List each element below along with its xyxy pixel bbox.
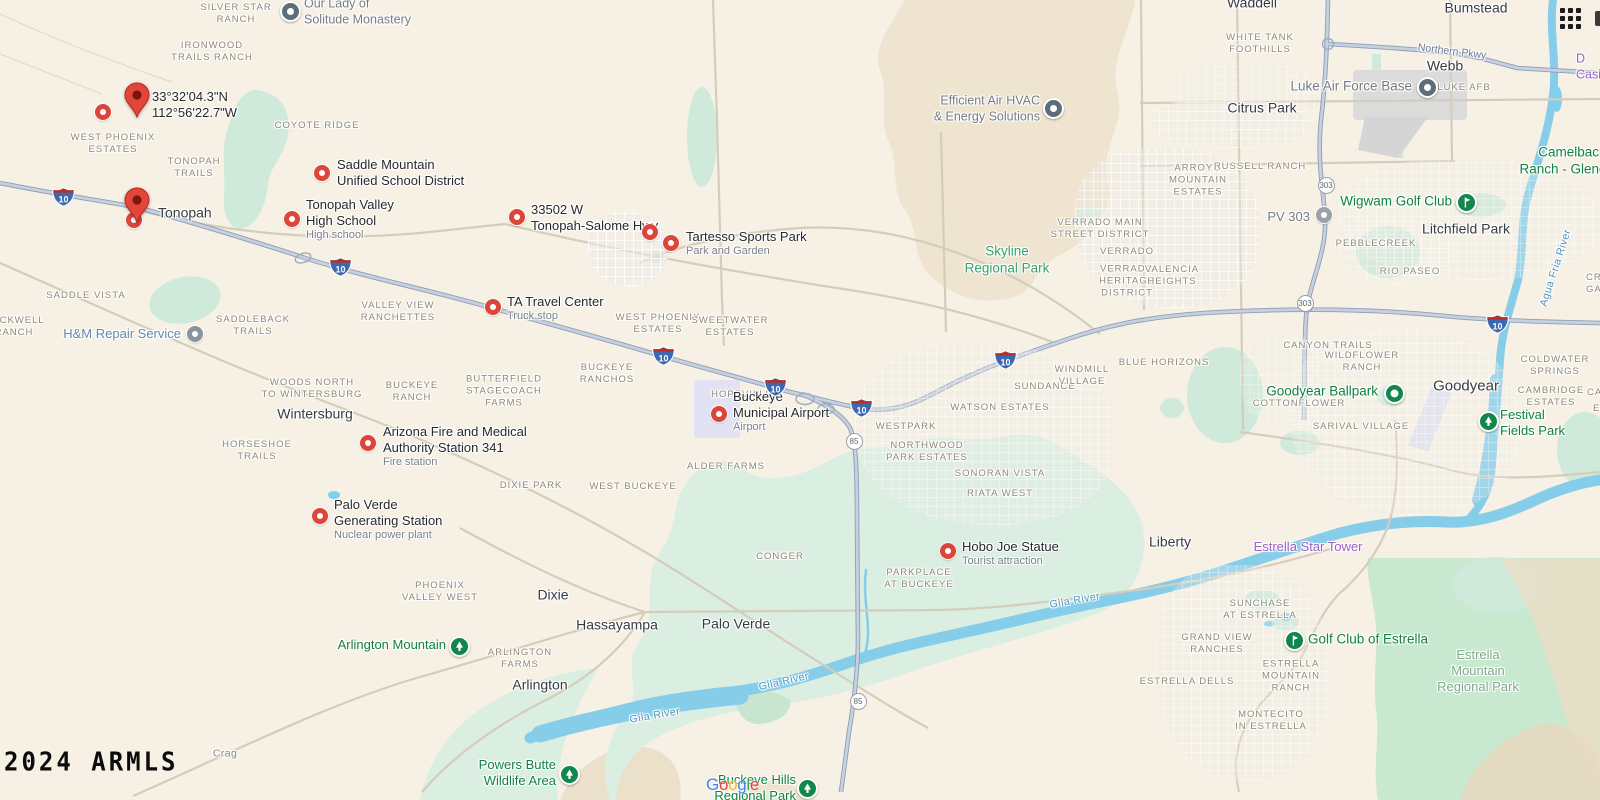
estrella-dells: ESTRELLA DELLS — [1140, 676, 1235, 688]
hwy-33502-w[interactable]: 33502 WTonopah-Salome Hwy — [531, 202, 658, 234]
i10-shield-6: 10 — [994, 350, 1017, 370]
buckeye-hills-icon[interactable] — [797, 778, 818, 799]
dropped-pin-coordinates[interactable] — [124, 82, 150, 123]
dixie-park: DIXIE PARK — [500, 480, 563, 492]
buckeye-ranchos: BUCKEYERANCHOS — [580, 362, 635, 386]
hm-repair-service[interactable]: H&M Repair Service — [63, 326, 181, 342]
west-phoenix-estates-1: WEST PHOENIXESTATES — [71, 132, 156, 156]
sr303-shield-1: 303 — [1318, 177, 1335, 194]
valencia-heights: VALENCIAHEIGHTS — [1145, 264, 1199, 288]
grid-icon[interactable] — [1560, 8, 1581, 29]
marker-pv-303[interactable] — [1316, 207, 1332, 223]
wildflower-ranch: WILDFLOWERRANCH — [1325, 350, 1399, 374]
crag: Crag — [213, 747, 237, 760]
i10-shield-3: 10 — [652, 346, 675, 366]
dropped-pin-coords[interactable]: 33°32'04.3"N112°56'22.7"W — [152, 89, 237, 121]
marker-tartesso-a[interactable] — [642, 224, 658, 240]
google-logo[interactable]: Google — [706, 775, 759, 795]
google-logo-letter: e — [750, 775, 759, 794]
grand-view-ranches: GRAND VIEWRANCHES — [1181, 632, 1252, 656]
marker-tonopah-valley-hs[interactable] — [284, 211, 300, 227]
golf-club-of-estrella[interactable]: Golf Club of Estrella — [1308, 632, 1428, 649]
arlington-mountain-icon[interactable] — [449, 636, 470, 657]
russell-ranch: RUSSELL RANCH — [1214, 161, 1306, 173]
ironwood-trails-ranch: IRONWOODTRAILS RANCH — [171, 40, 253, 64]
litchfield-park-city[interactable]: Litchfield Park — [1422, 220, 1510, 237]
google-logo-letter: G — [706, 775, 719, 794]
tonopah-valley-hs[interactable]: Tonopah ValleyHigh SchoolHigh school — [306, 197, 394, 243]
west-phoenix-estates-2: WEST PHOENIXESTATES — [616, 312, 701, 336]
verrado: VERRADO — [1100, 246, 1154, 258]
riata-west: RIATA WEST — [967, 488, 1033, 500]
sweetwater-estates: SWEETWATERESTATES — [691, 315, 768, 339]
westpark: WESTPARK — [876, 421, 937, 433]
northwood-park-estates: NORTHWOODPARK ESTATES — [886, 440, 968, 464]
dixie-city[interactable]: Dixie — [537, 586, 568, 603]
i10-shield-1: 10 — [52, 187, 75, 207]
marker-saddle-mountain-usd[interactable] — [314, 165, 330, 181]
svg-text:10: 10 — [58, 195, 68, 205]
efficient-air-hvac[interactable]: Efficient Air HVAC& Energy Solutions — [934, 94, 1040, 125]
valley-view-ranchettes: VALLEY VIEWRANCHETTES — [361, 300, 435, 324]
svg-text:10: 10 — [335, 265, 345, 275]
tonopah-city[interactable]: Tonopah — [158, 204, 212, 221]
casino-cut[interactable]: DCasin — [1576, 52, 1600, 83]
verrado-main-street-district: VERRADO MAINSTREET DISTRICT — [1051, 217, 1150, 241]
luke-air-force-base[interactable]: Luke Air Force Base — [1290, 79, 1412, 96]
saddle-mountain-usd[interactable]: Saddle MountainUnified School District — [337, 157, 464, 189]
marker-palo-verde-generating[interactable] — [312, 508, 328, 524]
coyote-ridge: COYOTE RIDGE — [275, 120, 360, 132]
goodyear-city[interactable]: Goodyear — [1433, 378, 1499, 397]
sarival-village: SARIVAL VILLAGE — [1313, 421, 1409, 433]
phoenix-valley-west: PHOENIXVALLEY WEST — [402, 580, 478, 604]
i10-shield-2: 10 — [329, 257, 352, 277]
goodyear-ballpark[interactable]: Goodyear Ballpark — [1266, 384, 1378, 401]
rockwell-ranch: ROCKWELLRANCH — [0, 315, 45, 339]
pebblecreek: PEBBLECREEK — [1336, 238, 1417, 250]
svg-text:10: 10 — [856, 406, 866, 416]
marker-hm-repair-service[interactable] — [187, 326, 203, 342]
skyline-regional-park[interactable]: SkylineRegional Park — [965, 243, 1050, 276]
pv-303[interactable]: PV 303 — [1267, 209, 1310, 225]
cut-label-cr-ga: CRGA — [1586, 272, 1600, 296]
conger: CONGER — [756, 551, 804, 563]
map-viewport[interactable]: SILVER STARRANCHIRONWOODTRAILS RANCHWEST… — [0, 0, 1600, 800]
our-lady-monastery[interactable]: Our Lady ofSolitude Monastery — [304, 0, 411, 28]
arlington-city[interactable]: Arlington — [512, 676, 567, 693]
white-tank-foothills: WHITE TANKFOOTHILLS — [1226, 32, 1294, 56]
cut-label-cas: CAS — [1587, 387, 1600, 399]
svg-text:10: 10 — [1000, 358, 1010, 368]
camelback-ranch-glendale[interactable]: CamelbackRanch - Glendale — [1519, 144, 1600, 177]
pin-tonopah[interactable] — [124, 187, 150, 228]
goodyear-ballpark-icon[interactable] — [1384, 383, 1405, 404]
estrella-star-tower[interactable]: Estrella Star Tower — [1254, 539, 1363, 555]
wigwam-golf-icon[interactable] — [1456, 192, 1477, 213]
woods-north-to-wintersburg: WOODS NORTHTO WINTERSBURG — [262, 377, 363, 401]
marker-ta-travel-center[interactable] — [485, 299, 501, 315]
powers-butte-wildlife[interactable]: Powers ButteWildlife Area — [479, 757, 556, 789]
hassayampa-city[interactable]: Hassayampa — [576, 616, 658, 633]
sunchase-at-estrella: SUNCHASEAT ESTRELLA — [1223, 598, 1296, 622]
google-logo-letter: o — [719, 775, 728, 794]
estrella-mountain-ranch: ESTRELLAMOUNTAINRANCH — [1262, 658, 1320, 693]
sr85-shield-2: 85 — [850, 693, 867, 710]
svg-text:10: 10 — [770, 385, 780, 395]
arlington-farms: ARLINGTONFARMS — [488, 647, 552, 671]
tonopah-trails: TONOPAHTRAILS — [167, 156, 220, 180]
citrus-park-city[interactable]: Citrus Park — [1227, 99, 1296, 116]
west-buckeye: WEST BUCKEYE — [589, 481, 676, 493]
palo-verde-generating[interactable]: Palo VerdeGenerating StationNuclear powe… — [334, 497, 442, 543]
hobo-joe-statue[interactable]: Hobo Joe StatueTourist attraction — [962, 539, 1059, 569]
sr85-shield-1: 85 — [846, 433, 863, 450]
watson-estates: WATSON ESTATES — [950, 402, 1049, 414]
alder-farms: ALDER FARMS — [687, 461, 765, 473]
marker-az-fire-station-341[interactable] — [360, 435, 376, 451]
cambridge-estates: CAMBRIDGEESTATES — [1518, 385, 1585, 409]
palo-verde-city[interactable]: Palo Verde — [702, 615, 771, 632]
liberty-city[interactable]: Liberty — [1149, 533, 1191, 550]
svg-text:10: 10 — [1492, 322, 1502, 332]
sr303-shield-2: 303 — [1297, 295, 1314, 312]
svg-text:10: 10 — [658, 354, 668, 364]
saddle-vista: SADDLE VISTA — [46, 290, 125, 302]
sonoran-vista: SONORAN VISTA — [955, 468, 1045, 480]
parkplace-at-buckeye: PARKPLACEAT BUCKEYE — [884, 567, 953, 591]
silver-star-ranch: SILVER STARRANCH — [200, 2, 271, 26]
marker-west-phoenix-estates[interactable] — [95, 104, 111, 120]
coldwater-springs: COLDWATERSPRINGS — [1521, 354, 1590, 378]
waddell-city[interactable]: Waddell — [1227, 0, 1277, 12]
powers-butte-icon[interactable] — [559, 764, 580, 785]
webb-city[interactable]: Webb — [1427, 57, 1463, 74]
luke-afb-small: LUKE AFB — [1437, 82, 1490, 94]
edge-partial-icon — [1595, 11, 1600, 26]
wintersburg-city[interactable]: Wintersburg — [277, 405, 352, 422]
blue-horizons: BLUE HORIZONS — [1119, 357, 1210, 369]
buckeye-ranch: BUCKEYERANCH — [386, 380, 438, 404]
estrella-mountain-regional-park: EstrellaMountainRegional Park — [1437, 647, 1519, 695]
az-fire-station-341[interactable]: Arizona Fire and MedicalAuthority Statio… — [383, 424, 527, 470]
luke-afb-icon[interactable] — [1417, 77, 1438, 98]
ta-travel-center[interactable]: TA Travel CenterTruck stop — [507, 294, 604, 324]
wigwam-golf-club[interactable]: Wigwam Golf Club — [1340, 194, 1452, 211]
google-logo-letter: o — [728, 775, 737, 794]
marker-hobo-joe-statue[interactable] — [940, 543, 956, 559]
efficient-air-icon[interactable] — [1043, 98, 1064, 119]
horseshoe-trails: HORSESHOETRAILS — [222, 439, 292, 463]
marker-buckeye-municipal-airport[interactable] — [711, 406, 727, 422]
rio-paseo: RIO PASEO — [1380, 266, 1441, 278]
bumstead-city[interactable]: Bumstead — [1444, 0, 1507, 17]
windmill-village: WINDMILLVILLAGE — [1055, 364, 1109, 388]
armls-watermark: 2024 ARMLS — [4, 747, 179, 777]
cut-label-e: E — [1593, 403, 1600, 415]
festival-fields-park[interactable]: FestivalFields Park — [1500, 407, 1565, 439]
i10-shield-4: 10 — [764, 377, 787, 397]
golf-club-estrella-icon[interactable] — [1284, 630, 1305, 651]
marker-33502-w[interactable] — [509, 209, 525, 225]
saddleback-trails: SADDLEBACKTRAILS — [216, 314, 290, 338]
i10-shield-5: 10 — [850, 398, 873, 418]
marker-tartesso-sports-park[interactable] — [663, 235, 679, 251]
tartesso-sports-park[interactable]: Tartesso Sports ParkPark and Garden — [686, 229, 807, 259]
butterfield-stagecoach-farms: BUTTERFIELDSTAGECOACHFARMS — [466, 373, 542, 408]
arlington-mountain[interactable]: Arlington Mountain — [338, 637, 446, 653]
our-lady-monastery-icon[interactable] — [280, 1, 301, 22]
festival-fields-icon[interactable] — [1478, 411, 1499, 432]
montecito-in-estrella: MONTECITOIN ESTRELLA — [1235, 709, 1307, 733]
i10-shield-7: 10 — [1486, 314, 1509, 334]
